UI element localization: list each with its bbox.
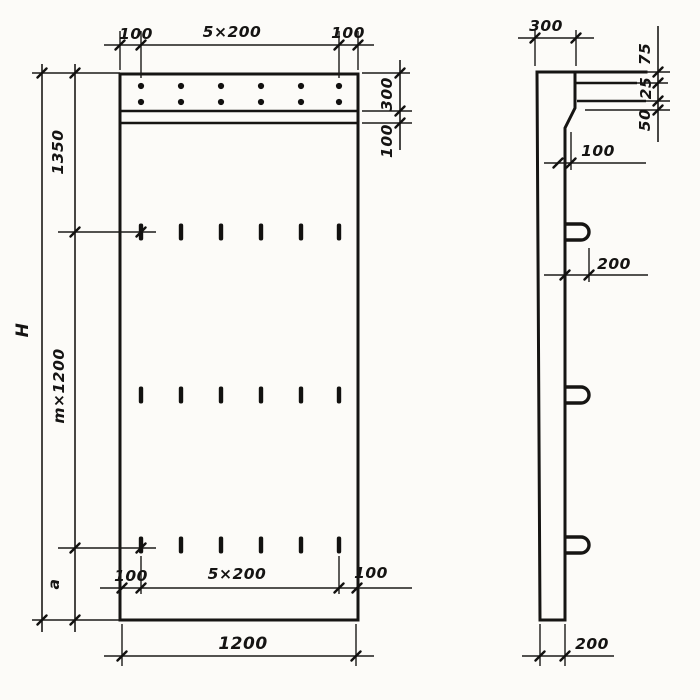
dim-overall-width: 1200 — [218, 634, 267, 654]
dim-top-pitch: 5×200 — [203, 23, 262, 41]
dim-bottom-right-spacing: 100 — [354, 564, 388, 582]
side-view: 300 75 25 50 100 200 200 — [518, 17, 670, 666]
engineering-drawing: 100 5×200 100 300 100 1350 m×1200 a H 10… — [0, 0, 700, 700]
dim-bottom-left-spacing: 100 — [114, 567, 148, 585]
front-view: 100 5×200 100 300 100 1350 m×1200 a H 10… — [13, 23, 412, 666]
dim-side-top-width: 300 — [529, 17, 563, 35]
dim-panel-thickness: 200 — [575, 635, 609, 653]
dim-top-right-spacing: 100 — [331, 24, 365, 42]
dim-edge-offset-mid: 25 — [637, 77, 655, 100]
dim-overall-height: H — [13, 323, 33, 338]
dim-bottom-pitch: 5×200 — [208, 565, 267, 583]
dim-upper-height: 1350 — [49, 129, 67, 174]
dim-module-height: m×1200 — [50, 348, 68, 423]
dim-ledge-depth: 100 — [581, 142, 615, 160]
dim-lower-height: a — [45, 579, 63, 590]
dim-cap-strip: 100 — [378, 124, 396, 158]
dim-loop-projection: 200 — [597, 255, 631, 273]
dim-top-left-spacing: 100 — [119, 25, 153, 43]
dim-edge-offset-bot: 50 — [636, 109, 654, 132]
front-panel-outline — [120, 74, 358, 620]
ledge-lines — [575, 83, 646, 101]
slot-holes — [139, 224, 341, 554]
lifting-loops — [565, 224, 589, 553]
drawing-sheet: 100 5×200 100 300 100 1350 m×1200 a H 10… — [0, 0, 700, 700]
dim-edge-offset-top: 75 — [636, 43, 654, 66]
dim-cap-height: 300 — [378, 77, 396, 111]
anchor-dots — [138, 83, 342, 105]
cap-band-lines — [120, 111, 358, 123]
